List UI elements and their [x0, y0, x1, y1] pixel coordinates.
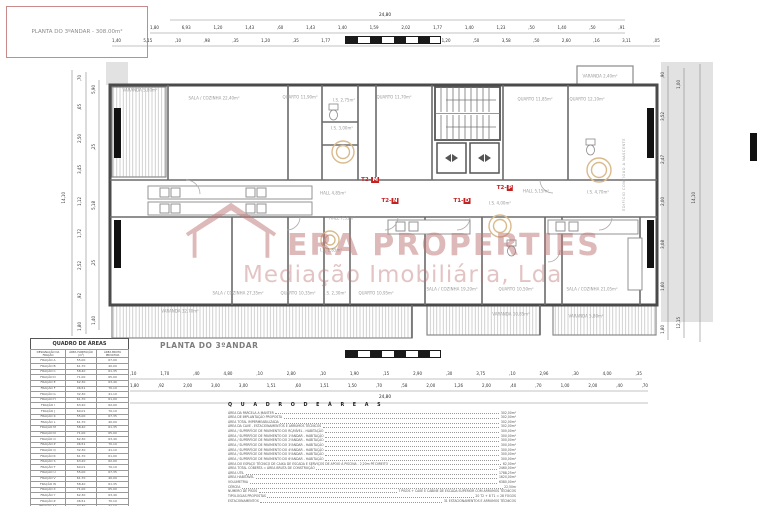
unit-letter: M — [371, 177, 378, 183]
unit-prefix: T2- — [361, 177, 371, 183]
unit-labels-layer: T2-M T2-N T1-D T2-P — [0, 0, 759, 506]
unit-letter: N — [392, 198, 399, 204]
unit-letter: D — [464, 198, 471, 204]
adjacent-building-note: EDIFÍCIO CONTÍGUO A NASCENTE — [622, 138, 626, 211]
unit-label: T1-D — [454, 198, 471, 204]
unit-prefix: T2- — [497, 185, 507, 191]
unit-label: T2-M — [361, 177, 379, 183]
unit-label: T2-N — [382, 198, 399, 204]
drawing-sheet: PLANTA DO 3ºANDAR - 308.00m² — [0, 0, 759, 506]
unit-prefix: T2- — [382, 198, 392, 204]
unit-label: T2-P — [497, 185, 513, 191]
unit-letter: P — [507, 185, 513, 191]
unit-prefix: T1- — [454, 198, 464, 204]
